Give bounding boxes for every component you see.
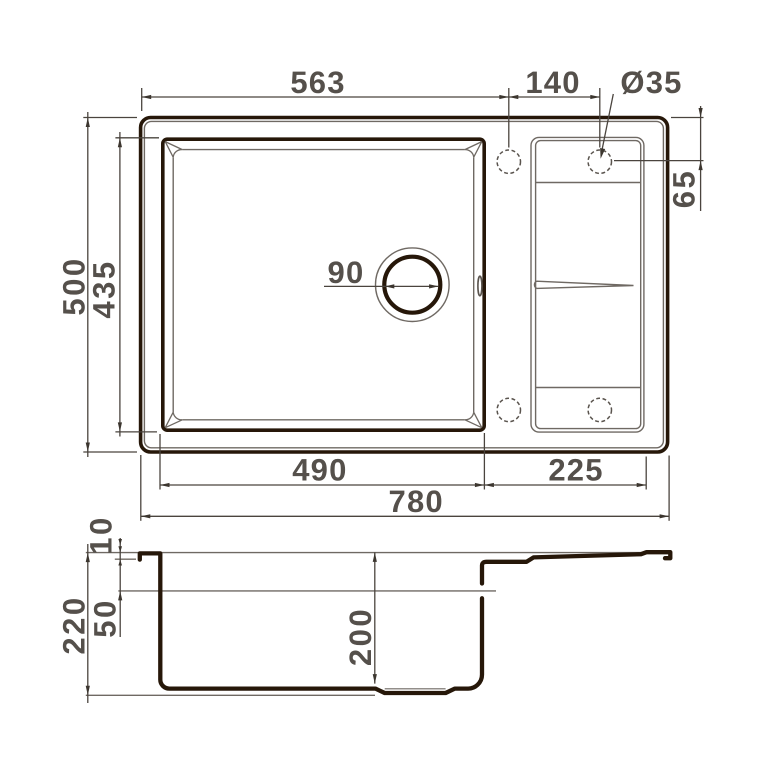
svg-text:780: 780	[389, 484, 444, 519]
svg-text:490: 490	[292, 453, 347, 488]
svg-text:220: 220	[56, 595, 91, 654]
svg-text:10: 10	[84, 515, 119, 554]
svg-text:50: 50	[88, 598, 123, 637]
svg-text:65: 65	[667, 169, 702, 208]
svg-text:140: 140	[525, 65, 580, 100]
svg-text:Ø35: Ø35	[620, 65, 682, 100]
svg-text:225: 225	[548, 453, 603, 488]
svg-text:90: 90	[328, 255, 365, 290]
svg-text:200: 200	[343, 607, 378, 666]
svg-text:435: 435	[87, 259, 122, 318]
svg-text:563: 563	[290, 65, 345, 100]
